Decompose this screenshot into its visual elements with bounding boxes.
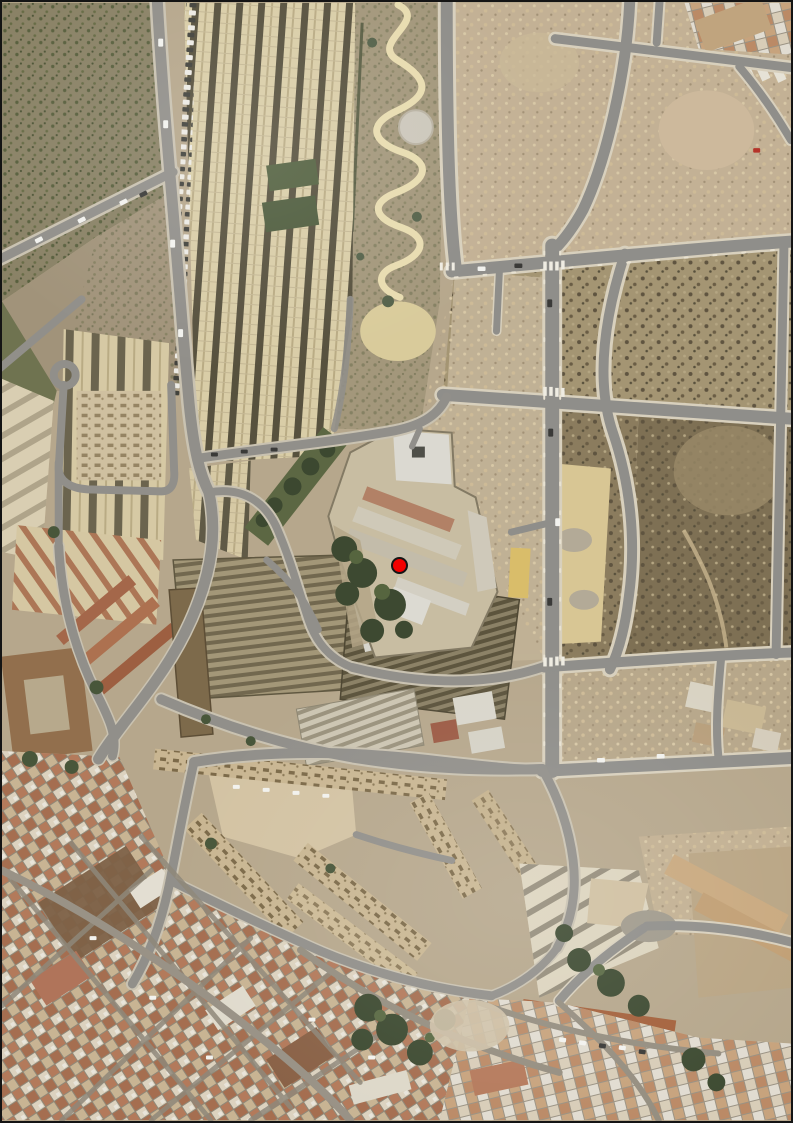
map-viewport <box>0 0 793 1123</box>
red-car <box>753 148 760 152</box>
location-marker[interactable] <box>391 557 408 574</box>
